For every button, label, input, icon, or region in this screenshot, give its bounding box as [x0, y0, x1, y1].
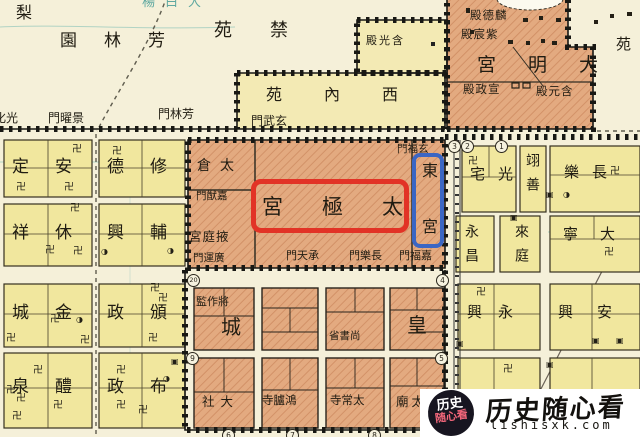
- street-number-8: 8: [368, 429, 381, 437]
- temple-icon: 卍: [158, 294, 168, 304]
- building-icon: ▣: [510, 214, 518, 222]
- temple-icon: 卍: [604, 248, 614, 258]
- label-taichangsi: 寺常太: [330, 396, 365, 408]
- changan-historical-map: 梨 園林芳 苑禁 楊白大 苑 化光 門曜景 門林芳 門武玄 苑內西 殿光含 宮明…: [0, 0, 640, 437]
- temple-icon: 卍: [148, 334, 158, 344]
- label-gate-guangyun: 門運廣: [193, 254, 225, 265]
- ward-anxing: 興安: [558, 306, 636, 321]
- building-icon: ▣: [592, 337, 600, 345]
- ward-yongchang: 永昌: [463, 224, 477, 272]
- watermark-site-url: lishisxk.com: [490, 418, 613, 432]
- ward-laiting: 來庭: [513, 224, 527, 272]
- temple-icon: 卍: [112, 147, 122, 157]
- temple-icon: 卍: [50, 315, 60, 325]
- ward-xiuxiang: 祥休: [12, 224, 98, 241]
- ward-yongxing: 興永: [467, 306, 529, 321]
- building-icon: ▣: [616, 337, 624, 345]
- label-huangcheng-cheng: 城: [221, 318, 241, 338]
- ward-banzheng: 政頒: [107, 304, 193, 321]
- temple-icon: 卍: [64, 183, 74, 193]
- ward-yishan: 翊善: [524, 153, 538, 201]
- shrine-icon: ◑: [563, 191, 570, 199]
- ward-xiude: 德修: [107, 158, 193, 175]
- watermark-bar: 历史 随心看 历史随心看 lishisxk.com: [420, 389, 640, 437]
- label-daming-palace: 宮明大: [477, 56, 630, 75]
- shrine-icon: ◑: [101, 248, 108, 256]
- label-yeting-palace: 宮庭掖: [189, 231, 230, 244]
- temple-icon: 卍: [610, 167, 620, 177]
- temple-icon: 卍: [468, 157, 478, 167]
- temple-icon: 卍: [72, 145, 82, 155]
- building-icon: ▣: [546, 361, 554, 369]
- street-number-6: 6: [222, 429, 235, 437]
- street-number-1: 1: [495, 140, 508, 153]
- temple-icon: 卍: [53, 401, 63, 411]
- label-hanyuan-hall: 殿元含: [536, 87, 574, 99]
- watermark-logo-badge: 历史 随心看: [425, 387, 477, 437]
- ward-anding: 定安: [12, 158, 98, 175]
- label-gate-jiafu: 門福嘉: [399, 251, 432, 262]
- temple-icon: 卍: [476, 288, 486, 298]
- label-huangcheng-huang: 皇: [407, 316, 427, 336]
- label-shangshusheng: 省書尚: [329, 332, 361, 343]
- label-gate-guanghua: 化光: [0, 112, 18, 124]
- temple-icon: 卍: [70, 204, 80, 214]
- temple-icon: 卍: [80, 336, 90, 346]
- building-icon: ▣: [546, 191, 554, 199]
- building-icon: ▣: [171, 358, 179, 366]
- label-gate-changle: 門樂長: [349, 251, 382, 262]
- label-hanguang-hall: 殿光含: [366, 36, 405, 47]
- label-linde-hall: 殿德麟: [470, 11, 508, 23]
- street-number-4: 4: [436, 274, 449, 287]
- label-gate-chengtian: 門天承: [286, 251, 319, 262]
- label-gate-jiayou: 門猷嘉: [196, 192, 228, 203]
- label-liyuan: 梨: [16, 6, 32, 22]
- label-gate-xuanfu: 門福玄: [397, 145, 429, 156]
- temple-icon: 卍: [73, 247, 83, 257]
- ward-buzheng: 政布: [107, 378, 193, 395]
- temple-icon: 卍: [6, 334, 16, 344]
- temple-icon: 卍: [116, 366, 126, 376]
- temple-icon: 卍: [138, 406, 148, 416]
- label-gate-fanglin: 門林芳: [158, 108, 194, 120]
- temple-icon: 卍: [12, 412, 22, 422]
- building-icon: ▣: [456, 340, 464, 348]
- street-number-3: 3: [448, 140, 461, 153]
- temple-icon: 卍: [116, 401, 126, 411]
- label-gate-xuanwu: 門武玄: [251, 115, 287, 127]
- street-number-20: 20: [187, 274, 200, 287]
- label-fanglin-garden: 園林芳: [60, 32, 192, 49]
- temple-icon: 卍: [33, 366, 43, 376]
- shrine-icon: ◑: [163, 375, 170, 383]
- label-west-inner-garden: 苑內西: [266, 88, 440, 104]
- hanguang-dot: [431, 42, 435, 46]
- label-taiji-palace: 宮極太: [262, 197, 442, 218]
- label-yuan-northeast: 苑: [616, 38, 631, 53]
- label-honglusi: 寺臚鴻: [262, 396, 297, 408]
- shrine-icon: ◑: [76, 316, 83, 324]
- street-number-2: 2: [461, 140, 474, 153]
- label-jiangzuojian: 監作將: [196, 297, 229, 308]
- label-jinyuan: 苑禁: [214, 21, 326, 39]
- temple-icon: 卍: [16, 183, 26, 193]
- temple-icon: 卍: [6, 386, 16, 396]
- ward-fuxing: 興輔: [107, 224, 193, 241]
- label-dashe: 社大: [202, 396, 239, 409]
- label-xuanzheng-hall: 殿政宣: [463, 85, 501, 97]
- shrine-icon: ◑: [167, 247, 174, 255]
- ward-guangzhai: 宅光: [470, 168, 526, 183]
- label-zichen-hall: 殿宸紫: [461, 30, 499, 42]
- label-gate-jingyao: 門曜景: [48, 112, 84, 124]
- street-number-9: 9: [186, 352, 199, 365]
- street-number-5: 5: [435, 352, 448, 365]
- label-taicang: 倉太: [197, 160, 243, 174]
- ward-daning: 寧大: [563, 228, 637, 243]
- label-dabaiyang: 楊白大: [142, 0, 211, 8]
- temple-icon: 卍: [16, 394, 26, 404]
- temple-icon: 卍: [503, 365, 513, 375]
- temple-icon: 卍: [45, 246, 55, 256]
- street-number-7: 7: [286, 429, 299, 437]
